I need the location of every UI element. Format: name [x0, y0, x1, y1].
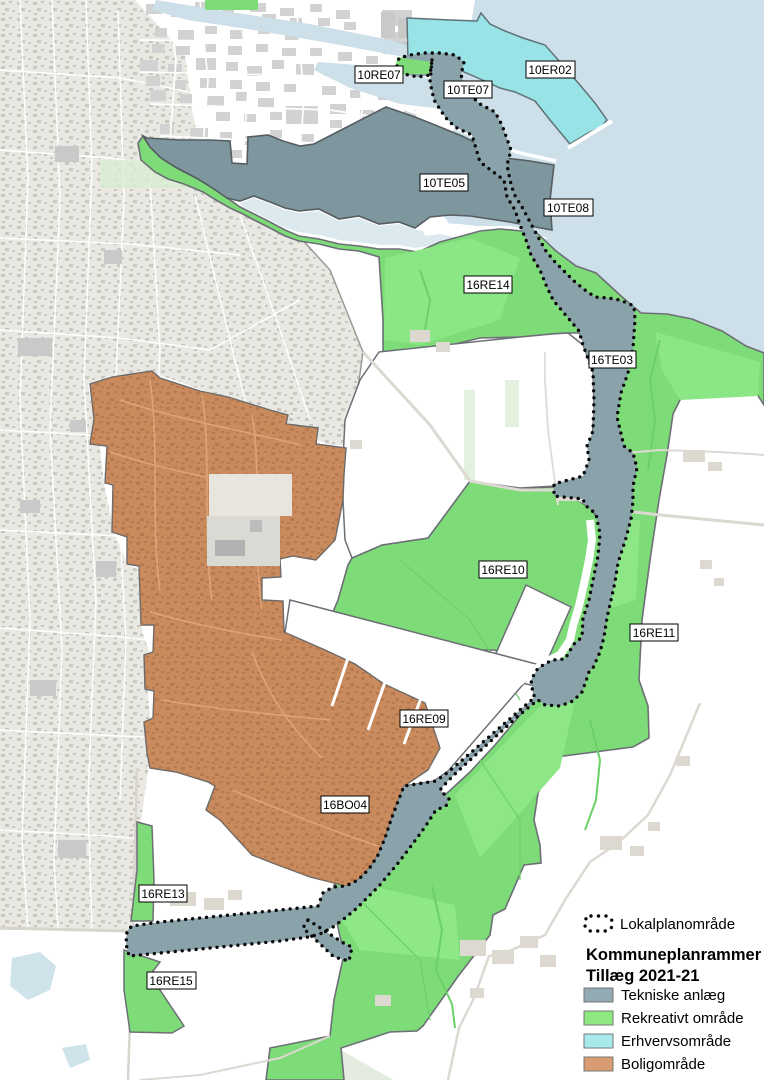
svg-text:16RE11: 16RE11: [633, 626, 676, 640]
svg-text:10TE05: 10TE05: [423, 176, 465, 190]
svg-text:10ER02: 10ER02: [528, 63, 572, 77]
svg-text:16RE09: 16RE09: [402, 712, 446, 726]
svg-text:16RE10: 16RE10: [481, 563, 525, 577]
svg-text:Lokalplanområde: Lokalplanområde: [620, 916, 735, 933]
svg-text:16RE14: 16RE14: [466, 278, 510, 292]
svg-text:Boligområde: Boligområde: [621, 1056, 705, 1073]
svg-text:10RE07: 10RE07: [357, 68, 401, 82]
svg-text:16RE13: 16RE13: [141, 887, 185, 901]
svg-text:16BO04: 16BO04: [323, 798, 367, 812]
svg-text:Tekniske anlæg: Tekniske anlæg: [621, 987, 725, 1004]
svg-text:Kommuneplanrammer: Kommuneplanrammer: [586, 946, 762, 964]
svg-text:10TE07: 10TE07: [447, 83, 489, 97]
svg-text:Tillæg 2021-21: Tillæg 2021-21: [586, 967, 699, 985]
svg-text:16TE03: 16TE03: [591, 353, 633, 367]
svg-text:Erhvervsområde: Erhvervsområde: [621, 1033, 731, 1050]
svg-text:16RE15: 16RE15: [149, 974, 193, 988]
svg-text:Rekreativt område: Rekreativt område: [621, 1010, 744, 1027]
svg-text:10TE08: 10TE08: [547, 201, 589, 215]
